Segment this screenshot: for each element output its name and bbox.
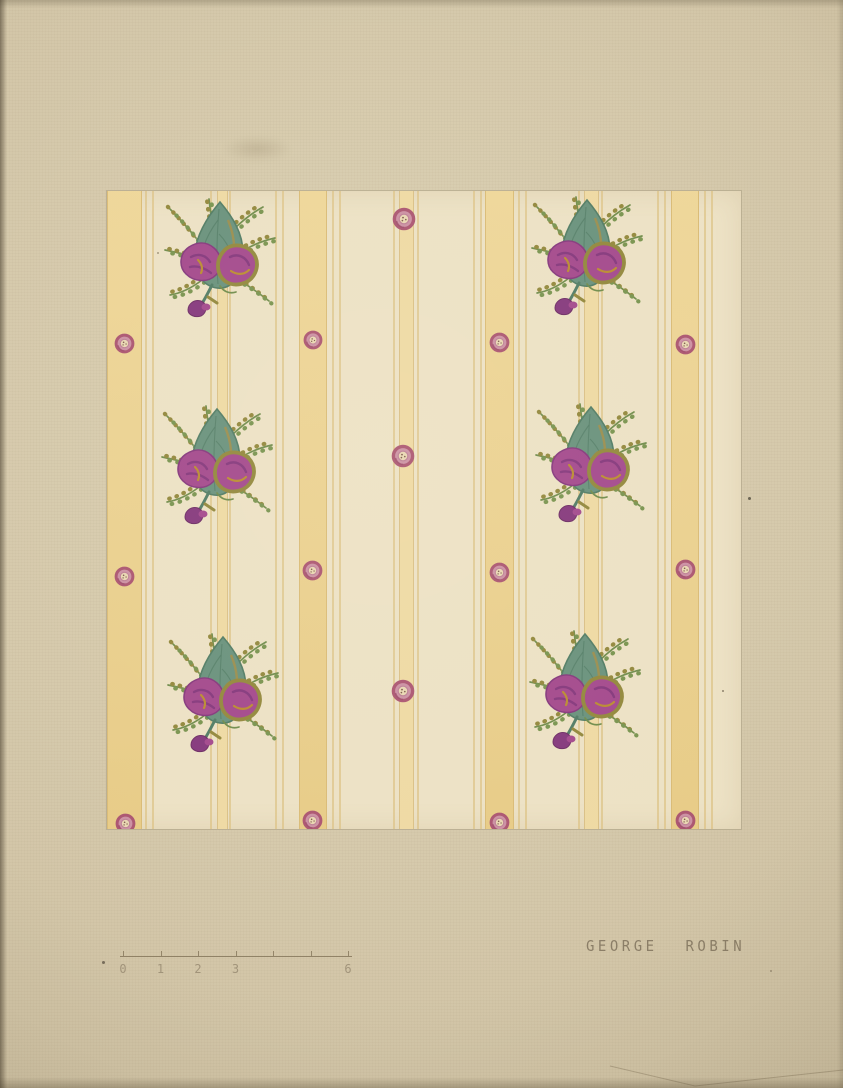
ruler-tick (123, 951, 124, 956)
pinstripe (339, 191, 341, 829)
pinstripe (417, 191, 419, 829)
paper-smudge (222, 136, 292, 162)
rosette-motif (114, 333, 135, 354)
wallpaper-sample (106, 190, 742, 830)
pinstripe (657, 191, 659, 829)
rosette-motif (675, 334, 696, 355)
yellow-band (485, 191, 514, 829)
yellow-band (299, 191, 327, 829)
ruler-number: 3 (232, 962, 239, 976)
ruler-tick (311, 951, 312, 956)
rosette-motif (392, 207, 416, 231)
rosette-motif (675, 810, 696, 831)
rosette-motif (489, 562, 510, 583)
rosette-motif (114, 566, 135, 587)
pinstripe (473, 191, 475, 829)
rosette-motif (489, 332, 510, 353)
yellow-band (671, 191, 699, 829)
ruler-tick (161, 951, 162, 956)
bouquet-motif (525, 626, 649, 750)
pinstripe (152, 191, 154, 829)
bouquet-motif (163, 629, 287, 753)
pinstripe (393, 191, 395, 829)
ruler-number: 6 (344, 962, 351, 976)
ruler-tick (236, 951, 237, 956)
ruler-tick (198, 951, 199, 956)
pinstripe (518, 191, 520, 829)
scanned-artwork-page: 01236 GEORGE ROBIN (0, 0, 843, 1088)
paper-speck (102, 961, 105, 964)
ruler-number: 1 (157, 962, 164, 976)
paper-speck (770, 970, 772, 972)
bouquet-motif (531, 399, 655, 523)
ruler-tick (348, 951, 349, 956)
pinstripe (480, 191, 482, 829)
ruler-number: 2 (194, 962, 201, 976)
pinstripe (704, 191, 706, 829)
bouquet-motif (527, 192, 651, 316)
rosette-motif (675, 559, 696, 580)
bouquet-motif (160, 194, 284, 318)
pinstripe (711, 191, 713, 829)
scale-ruler-line (120, 956, 352, 957)
bouquet-motif (157, 401, 281, 525)
rosette-motif (302, 810, 323, 831)
rosette-motif (489, 812, 510, 831)
pinstripe (664, 191, 666, 829)
rosette-motif (391, 444, 415, 468)
rosette-motif (115, 813, 136, 831)
yellow-band (107, 191, 142, 829)
ruler-tick (273, 951, 274, 956)
rosette-motif (302, 560, 323, 581)
pinstripe (145, 191, 147, 829)
pinstripe (332, 191, 334, 829)
paper-speck (748, 497, 751, 500)
artist-signature: GEORGE ROBIN (586, 939, 745, 956)
rosette-motif (303, 330, 323, 350)
narrow-yellow-stripe (399, 191, 414, 829)
rosette-motif (391, 679, 415, 703)
ruler-number: 0 (119, 962, 126, 976)
